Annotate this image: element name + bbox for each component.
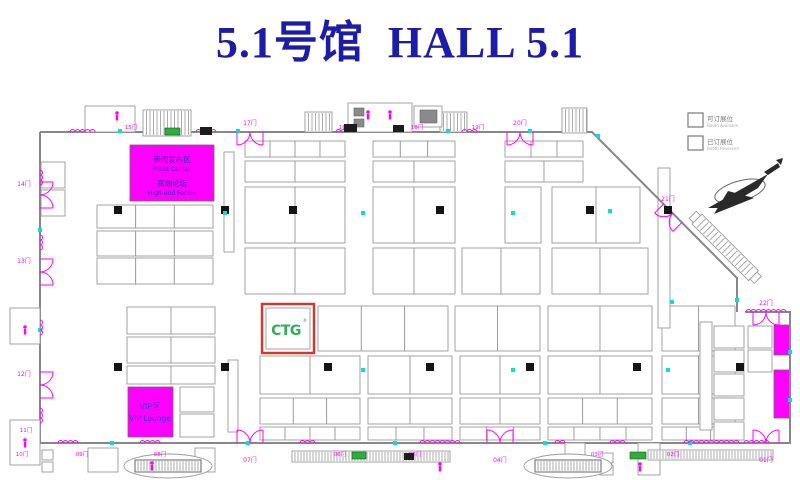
hydrant-marker	[38, 228, 42, 232]
gate-arc	[40, 372, 53, 385]
booth	[260, 427, 285, 440]
door-label: 06门	[334, 450, 347, 458]
person-icon	[638, 462, 642, 466]
booth	[487, 427, 514, 440]
booth	[548, 398, 583, 424]
booth	[414, 161, 455, 182]
booth	[714, 326, 744, 348]
gate-arc	[40, 385, 53, 398]
booth	[310, 427, 335, 440]
facility-dark-block	[354, 108, 364, 116]
person-icon	[367, 114, 369, 120]
booth	[460, 356, 500, 394]
legend-label-available-en: Booth Available	[707, 123, 739, 128]
booth	[295, 141, 320, 157]
gate-arc	[40, 259, 53, 272]
booth	[500, 398, 540, 424]
booth	[174, 258, 213, 284]
booth	[557, 141, 583, 157]
booth	[548, 356, 600, 394]
equipment-box-green	[352, 452, 366, 459]
booth	[373, 141, 400, 157]
booth	[127, 307, 171, 334]
hydrant-marker	[446, 129, 450, 133]
gate	[753, 312, 779, 325]
booth	[662, 398, 699, 424]
booth	[127, 366, 171, 384]
hydrant-marker	[543, 441, 547, 445]
booth	[600, 306, 652, 351]
gate-label: 13门	[17, 257, 31, 265]
door-label: 03门	[591, 450, 604, 458]
gate-label: 17门	[243, 119, 257, 127]
hydrant-marker	[361, 368, 365, 372]
facility-dark-block	[420, 110, 437, 123]
hydrant-marker	[788, 398, 792, 402]
booth	[373, 187, 414, 243]
corridor-partition	[228, 360, 238, 432]
gate-label: 01门	[759, 456, 773, 464]
gate	[237, 430, 263, 443]
gate	[40, 372, 53, 398]
booth	[460, 427, 487, 440]
gate	[40, 259, 53, 285]
hydrant-marker	[735, 298, 739, 302]
vip-lounge-area	[128, 387, 173, 437]
person-icon	[366, 110, 370, 114]
booth	[136, 205, 175, 228]
airplane-icon	[708, 158, 783, 214]
equipment-box-black	[200, 127, 212, 135]
booth	[498, 306, 541, 351]
booth	[260, 356, 310, 394]
pillar	[114, 363, 122, 371]
floorplan-drawing: 17门20门07门04门01门22门21门14门13门12门15门16门18门1…	[0, 0, 800, 480]
person-icon	[150, 461, 154, 465]
booth	[460, 398, 500, 424]
booth	[285, 427, 310, 440]
booth	[662, 427, 686, 440]
gate-label: 07门	[243, 456, 257, 464]
hydrant-marker	[670, 300, 674, 304]
booth	[180, 387, 214, 412]
door-label: 18门	[411, 123, 424, 131]
legend-label-available-cn: 可订展位	[707, 114, 734, 123]
booth	[714, 422, 744, 440]
booth	[500, 356, 540, 394]
pillar	[324, 363, 332, 371]
pillar	[736, 363, 744, 371]
person-icon	[116, 115, 118, 121]
booth	[174, 231, 213, 256]
booth	[505, 161, 544, 182]
booth	[428, 141, 455, 157]
person-icon	[24, 442, 26, 448]
hydrant-marker	[608, 209, 612, 213]
hydrant-marker	[511, 368, 515, 372]
booth	[368, 356, 410, 394]
gate	[753, 430, 779, 443]
door-label: 10门	[16, 450, 29, 458]
high-end-forum-label-en: High-end Forum	[148, 190, 196, 197]
stair-block	[305, 112, 332, 132]
reserved-strip-booth	[774, 325, 790, 355]
booth	[97, 258, 136, 284]
booth	[318, 306, 361, 351]
booth	[368, 398, 410, 424]
booth	[310, 356, 360, 394]
booth	[136, 231, 175, 256]
hydrant-marker	[596, 134, 600, 138]
person-icon	[24, 329, 26, 335]
equipment-box-black	[344, 124, 357, 132]
booth	[174, 205, 213, 228]
press-center-label-en: Press Center	[153, 166, 191, 173]
hydrant-marker	[788, 350, 792, 354]
booth	[462, 248, 501, 294]
booth	[405, 306, 448, 351]
booth	[414, 248, 455, 294]
hydrant-marker	[118, 129, 122, 133]
legend-swatch-available	[688, 113, 703, 127]
booth	[295, 248, 345, 294]
booth	[361, 306, 404, 351]
gate-label: 12门	[17, 370, 31, 378]
door-label: 19门	[472, 123, 485, 131]
press-center-label-cn: 新闻发布区	[153, 154, 191, 164]
booth	[600, 356, 652, 394]
person-icon	[389, 114, 391, 120]
pillar	[289, 206, 297, 214]
booth	[600, 248, 648, 294]
legend-swatch-reserved	[688, 136, 703, 150]
diagonal-escalator	[688, 210, 763, 285]
facility-structure	[42, 462, 53, 472]
booth	[368, 427, 396, 440]
legend-label-reserved-cn: 已订展位	[707, 137, 734, 146]
booth	[320, 141, 345, 157]
facility-structure	[88, 448, 118, 472]
booth	[414, 187, 455, 243]
corridor-partition	[700, 322, 712, 430]
hydrant-marker	[393, 441, 397, 445]
diagonal-escalator-body	[692, 214, 758, 280]
hydrant-marker	[666, 368, 670, 372]
pillar	[633, 363, 641, 371]
equipment-box-black	[404, 453, 414, 460]
pillar	[436, 206, 444, 214]
booth	[400, 141, 427, 157]
booth	[373, 161, 414, 182]
booth	[574, 427, 600, 440]
door-label: 02门	[667, 450, 680, 458]
facility-structure	[42, 450, 53, 460]
legend: 可订展位 Booth Available 已订展位 Booth Reserved	[688, 113, 739, 151]
hydrant-marker	[511, 211, 515, 215]
booth	[97, 231, 136, 256]
booth	[410, 398, 452, 424]
ctg-logo: CTG	[271, 323, 301, 339]
booth	[548, 427, 574, 440]
booth	[626, 427, 652, 440]
booth	[295, 161, 345, 182]
booth	[544, 161, 583, 182]
corridor-partition	[224, 152, 234, 252]
gate-label: 20门	[513, 119, 527, 127]
person-icon	[151, 465, 153, 471]
person-icon	[438, 462, 442, 466]
pillar	[114, 206, 122, 214]
door-label: 11门	[20, 426, 33, 434]
booth	[327, 398, 360, 424]
vip-lounge-label-en: VIP Lounge	[129, 414, 171, 423]
booth	[501, 248, 540, 294]
booth	[600, 427, 626, 440]
booth	[270, 141, 295, 157]
gate-label: 04门	[493, 456, 507, 464]
booth	[748, 350, 772, 372]
gate-arc	[753, 312, 766, 325]
person-icon	[115, 111, 119, 115]
booth	[455, 306, 498, 351]
person-icon	[23, 438, 27, 442]
person-icon	[388, 110, 392, 114]
booth	[127, 337, 171, 363]
booth	[552, 248, 600, 294]
booth	[295, 187, 345, 243]
booth	[396, 427, 424, 440]
gate-leaf	[673, 222, 682, 231]
pillar	[664, 206, 672, 214]
equipment-box-green	[630, 452, 646, 459]
booth	[714, 398, 744, 420]
gate-label: 21门	[661, 195, 675, 203]
stair-block	[440, 112, 467, 132]
gate-arc	[40, 272, 53, 285]
hydrant-marker	[361, 211, 365, 215]
hydrant-marker	[246, 441, 250, 445]
hydrant-marker	[528, 129, 532, 133]
booth	[424, 427, 452, 440]
pillar	[221, 363, 229, 371]
booth	[245, 248, 295, 294]
booth	[583, 398, 618, 424]
booth	[260, 398, 293, 424]
door-label: 15门	[125, 123, 138, 131]
booth	[293, 398, 326, 424]
hydrant-marker	[110, 441, 114, 445]
person-icon	[23, 325, 27, 329]
corridor-partition	[658, 168, 670, 328]
booth	[552, 187, 596, 243]
booth	[596, 187, 640, 243]
person-icon	[639, 466, 641, 472]
booth	[373, 248, 414, 294]
booth	[531, 141, 557, 157]
booth	[136, 258, 175, 284]
booth	[335, 427, 360, 440]
floorplan-generated: 17门20门07门04门01门22门21门14门13门12门15门16门18门1…	[10, 103, 792, 478]
pillar	[426, 363, 434, 371]
booth	[245, 187, 295, 243]
booth	[180, 414, 214, 437]
gate-label: 22门	[759, 299, 773, 307]
booth	[171, 307, 215, 334]
highlighted-booth-ctg: CTG ®	[262, 304, 314, 353]
booth	[505, 187, 541, 243]
hydrant-marker	[223, 211, 227, 215]
reserved-strip-booth	[774, 370, 790, 418]
screenshot-root: 5.1号馆 HALL 5.1 17门20门07门04门01门22门21门14门1…	[0, 0, 800, 480]
equipment-box-green	[165, 128, 180, 135]
gate-label: 14门	[17, 180, 31, 188]
vip-lounge-label-cn: VIP区	[140, 402, 161, 411]
pillar	[586, 206, 594, 214]
door-label: 08门	[154, 450, 167, 458]
high-end-forum-label-cn: 高端论坛	[157, 178, 187, 188]
booth	[662, 356, 699, 394]
booth	[748, 326, 772, 348]
person-icon	[439, 466, 441, 472]
booth	[171, 366, 215, 384]
booth	[714, 374, 744, 396]
gate-arc	[766, 312, 779, 325]
booth	[617, 398, 652, 424]
legend-label-reserved-en: Booth Reserved	[707, 146, 739, 151]
booth	[410, 356, 452, 394]
booth	[245, 161, 295, 182]
pillar	[526, 363, 534, 371]
booth	[513, 427, 540, 440]
booth	[548, 306, 600, 351]
equipment-box-black	[393, 125, 404, 132]
door-label: 09门	[76, 450, 89, 458]
ctg-logo-reg-mark: ®	[303, 318, 307, 323]
booth	[171, 337, 215, 363]
